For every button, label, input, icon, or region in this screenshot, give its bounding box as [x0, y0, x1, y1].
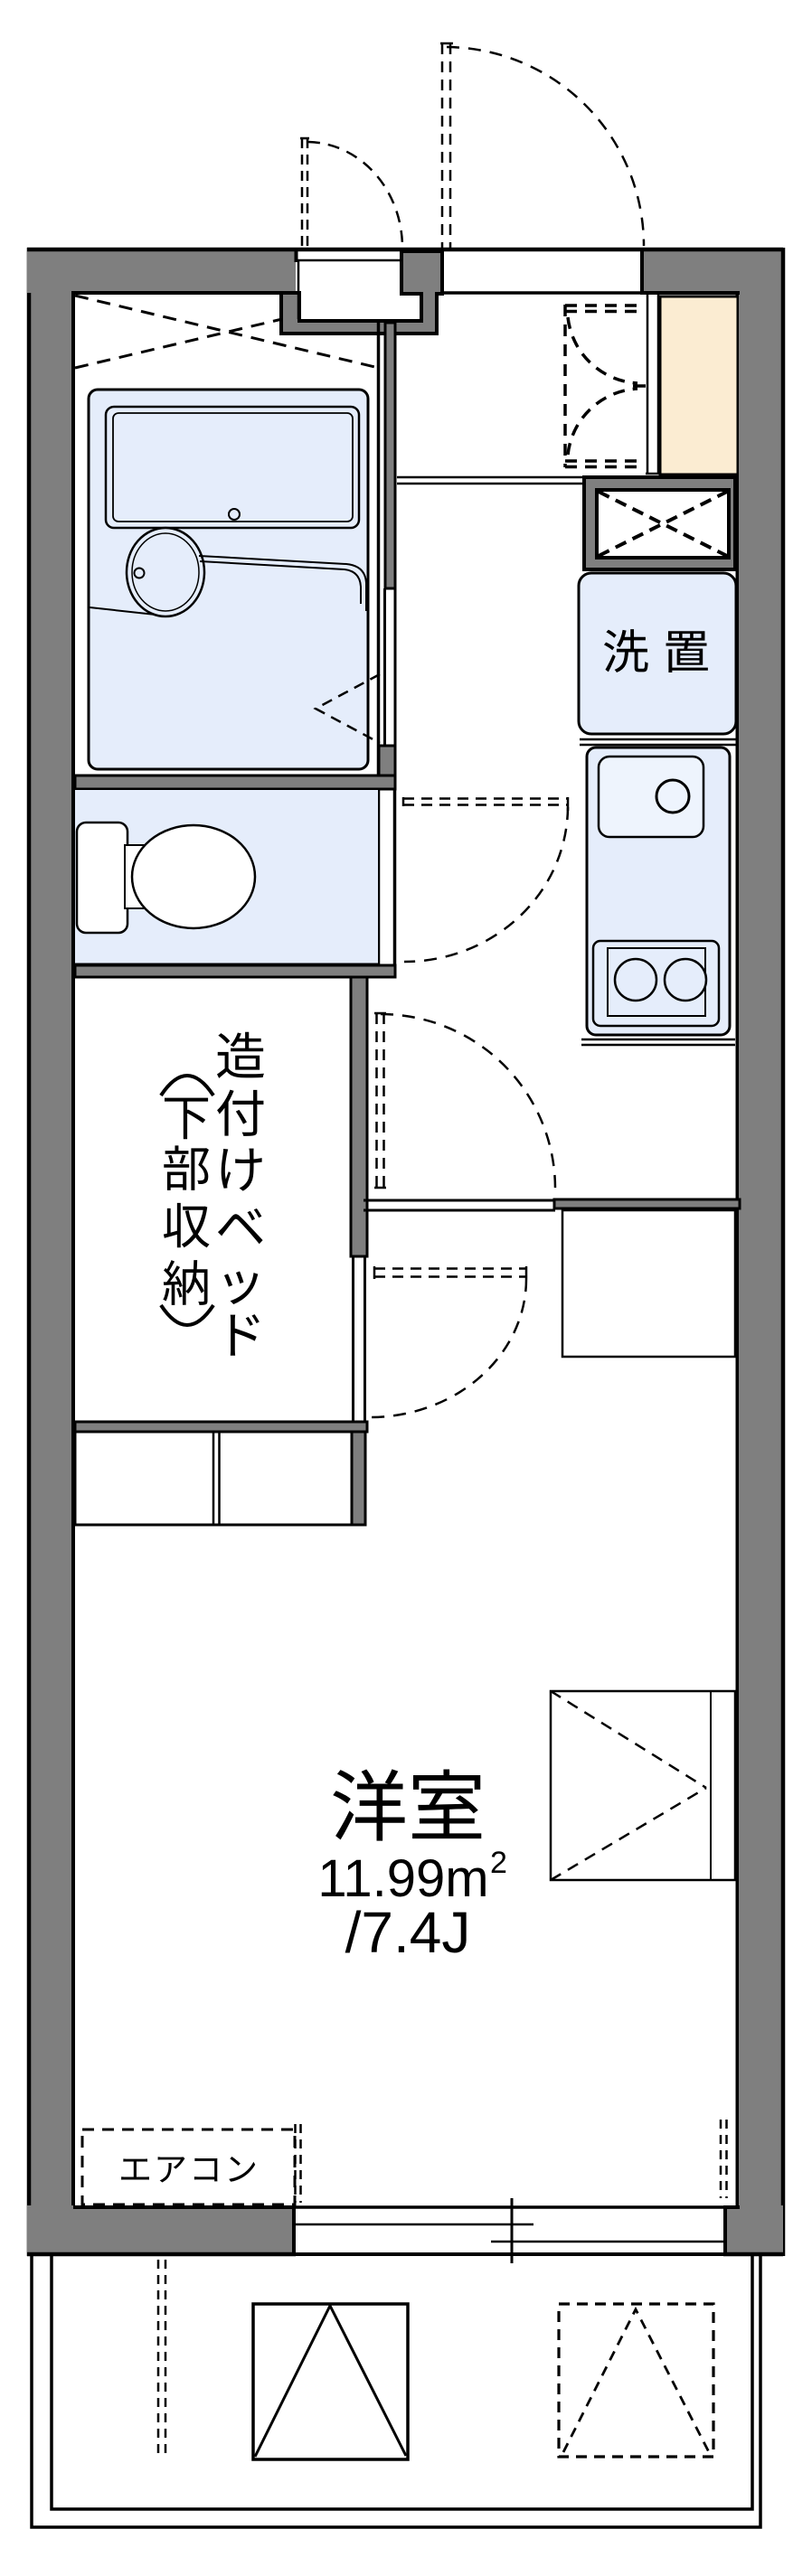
svg-text:2: 2 — [490, 1846, 507, 1880]
svg-text:/7.4J: /7.4J — [345, 1900, 471, 1965]
